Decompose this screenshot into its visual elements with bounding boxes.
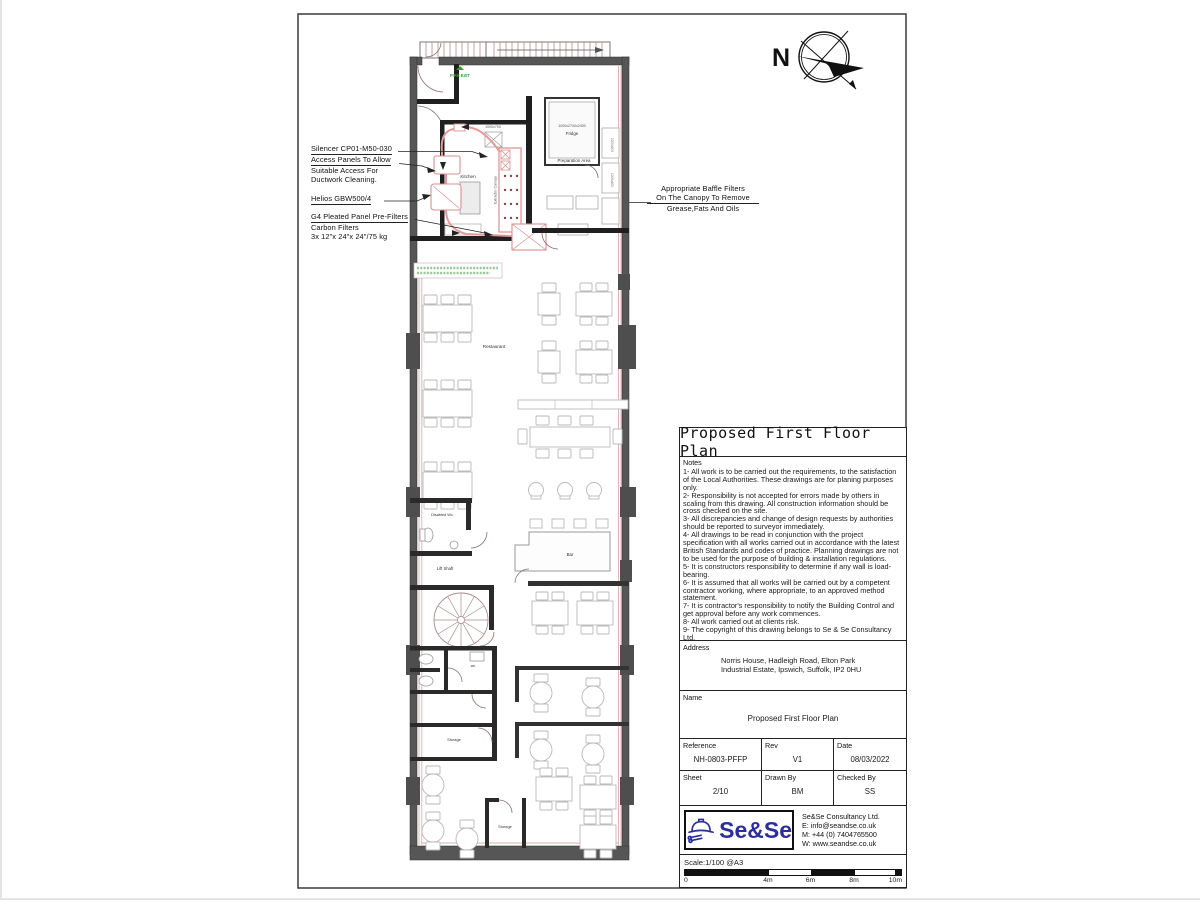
- spec-note-green: [414, 263, 502, 278]
- storage2-label: Storage: [498, 824, 512, 829]
- notes-header: Notes: [683, 459, 903, 467]
- address-text: Norris House, Hadleigh Road, Elton Park …: [683, 653, 868, 674]
- checked-by-value: SS: [837, 787, 903, 796]
- address-box: Address Norris House, Hadleigh Road, Elt…: [679, 641, 907, 691]
- fire-exit-sign: FIRE EXIT: [450, 66, 470, 78]
- drawing-title: Proposed First Floor Plan: [679, 427, 907, 457]
- reference-row: Reference NH-0803-PFFP Rev V1 Date 08/03…: [679, 739, 907, 771]
- annotation-helios: Helios GBW500/4: [311, 194, 371, 205]
- scale-ticks: 0 4m 6m 8m 10m: [684, 876, 902, 885]
- rev-cell: Rev V1: [762, 739, 834, 770]
- drawing-name: Proposed First Floor Plan: [683, 714, 903, 723]
- floor-plan-drawing: N: [2, 0, 1200, 900]
- logo-text: Se&Se: [719, 817, 792, 844]
- kitchen-label: Kitchen: [460, 174, 476, 179]
- spiral-stair: [410, 585, 494, 647]
- note-line: 3- All discrepancies and change of desig…: [683, 515, 903, 531]
- checked-by-cell: Checked By SS: [834, 771, 906, 805]
- wc-rooms: wc Storage: [410, 646, 497, 761]
- reference-cell: Reference NH-0803-PFFP: [680, 739, 762, 770]
- notes-box: Notes 1- All work is to be carried out t…: [679, 457, 907, 641]
- annotation-access-panels: Access Panels To Allow Suitable Access F…: [311, 155, 391, 185]
- bar-area: Bar: [515, 519, 629, 586]
- storage1-label: Storage: [447, 737, 461, 742]
- annotation-filters: G4 Pleated Panel Pre-Filters Carbon Filt…: [311, 212, 408, 242]
- kitchen-dim-label: 1000x700: [485, 125, 501, 129]
- shelf-dim-1: 1200x600: [610, 138, 614, 152]
- extractor-canopy: Extractor Canopy: [494, 148, 522, 232]
- title-block: Proposed First Floor Plan Notes 1- All w…: [679, 427, 907, 888]
- scale-text: Scale:1/100 @A3: [684, 858, 903, 867]
- kitchen-room: 1000x700 Kitchen E: [410, 96, 546, 250]
- sheet-value: 2/10: [683, 787, 758, 796]
- drawing-sheet: N: [0, 0, 1200, 900]
- compass-n-label: N: [772, 44, 790, 72]
- silencer-unit: [434, 156, 460, 174]
- lift-shaft-label: Lift Shaft: [437, 566, 454, 571]
- storage2-room: Storage: [485, 798, 526, 848]
- name-box: Name Proposed First Floor Plan: [679, 691, 907, 739]
- restaurant-label: Restaurant: [483, 344, 506, 349]
- preparation-area-label: Preparation Area: [558, 158, 592, 163]
- annotation-silencer: Silencer CP01-M50-030: [311, 144, 392, 155]
- company-email: E: info@seandse.co.uk: [802, 821, 880, 830]
- note-line: 6- It is assumed that all works will be …: [683, 579, 903, 603]
- long-table: [518, 416, 622, 458]
- company-details: Se&Se Consultancy Ltd. E: info@seandse.c…: [802, 812, 880, 848]
- fridge-room: 1000x2700x2400 Fridge: [545, 98, 599, 178]
- company-name: Se&Se Consultancy Ltd.: [802, 812, 880, 821]
- note-line: 7- It is contractor's responsibility to …: [683, 602, 903, 618]
- extractor-canopy-label: Extractor Canopy: [494, 176, 498, 204]
- wc-label: wc: [471, 663, 476, 668]
- shelf-dim-2: 1200x600: [610, 173, 614, 187]
- drawn-by-value: BM: [765, 787, 830, 796]
- note-line: 4- All drawings to be read in conjunctio…: [683, 531, 903, 563]
- date-value: 08/03/2022: [837, 755, 903, 764]
- note-line: 2- Responsibility is not accepted for er…: [683, 492, 903, 516]
- sheet-row: Sheet 2/10 Drawn By BM Checked By SS: [679, 771, 907, 806]
- note-line: 1- All work is to be carried out the req…: [683, 468, 903, 492]
- company-logo: Se&Se: [684, 810, 794, 850]
- restaurant-area: Restaurant: [423, 283, 628, 509]
- scale-bar: [684, 869, 902, 876]
- name-label: Name: [683, 693, 903, 702]
- date-cell: Date 08/03/2022: [834, 739, 906, 770]
- rev-value: V1: [765, 755, 830, 764]
- sheet-cell: Sheet 2/10: [680, 771, 762, 805]
- company-website: W: www.seandse.co.uk: [802, 839, 880, 848]
- scale-box: Scale:1/100 @A3 0 4m 6m 8m 10m: [679, 855, 907, 888]
- annotation-baffle-filters: Appropriate Baffle Filters On The Canopy…: [647, 184, 759, 214]
- reference-value: NH-0803-PFFP: [683, 755, 758, 764]
- fridge-dim-label: 1000x2700x2400: [558, 124, 586, 128]
- fridge-label: Fridge: [566, 131, 579, 136]
- note-line: 9- The copyright of this drawing belongs…: [683, 626, 903, 641]
- company-phone: M: +44 (0) 7404765500: [802, 830, 880, 839]
- fire-exit-label: FIRE EXIT: [450, 73, 470, 78]
- note-line: 5- It is constructors responsibility to …: [683, 563, 903, 579]
- bar-label: Bar: [567, 552, 574, 557]
- logo-row: Se&Se Se&Se Consultancy Ltd. E: info@sea…: [679, 806, 907, 855]
- address-label: Address: [683, 643, 903, 652]
- disabled-wc-label: Disabled Wc: [431, 512, 453, 517]
- external-stair: [420, 42, 610, 58]
- drawn-by-cell: Drawn By BM: [762, 771, 834, 805]
- filter-box: [512, 224, 546, 250]
- hard-hat-icon: [686, 815, 716, 845]
- north-compass-icon: N: [772, 31, 864, 89]
